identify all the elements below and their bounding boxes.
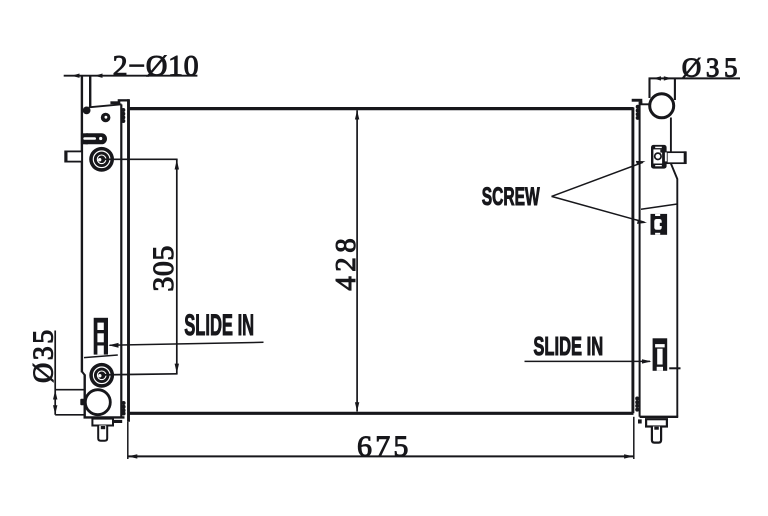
svg-text:SLIDE IN: SLIDE IN [533,331,603,361]
svg-text:428: 428 [330,234,362,291]
svg-text:SCREW: SCREW [482,184,540,212]
svg-text:2−Ø10: 2−Ø10 [113,49,200,82]
svg-text:Ø35: Ø35 [29,327,60,383]
svg-text:675: 675 [357,430,412,463]
svg-text:SLIDE IN: SLIDE IN [184,309,254,342]
svg-text:Ø35: Ø35 [682,52,742,82]
svg-text:305: 305 [147,245,180,292]
